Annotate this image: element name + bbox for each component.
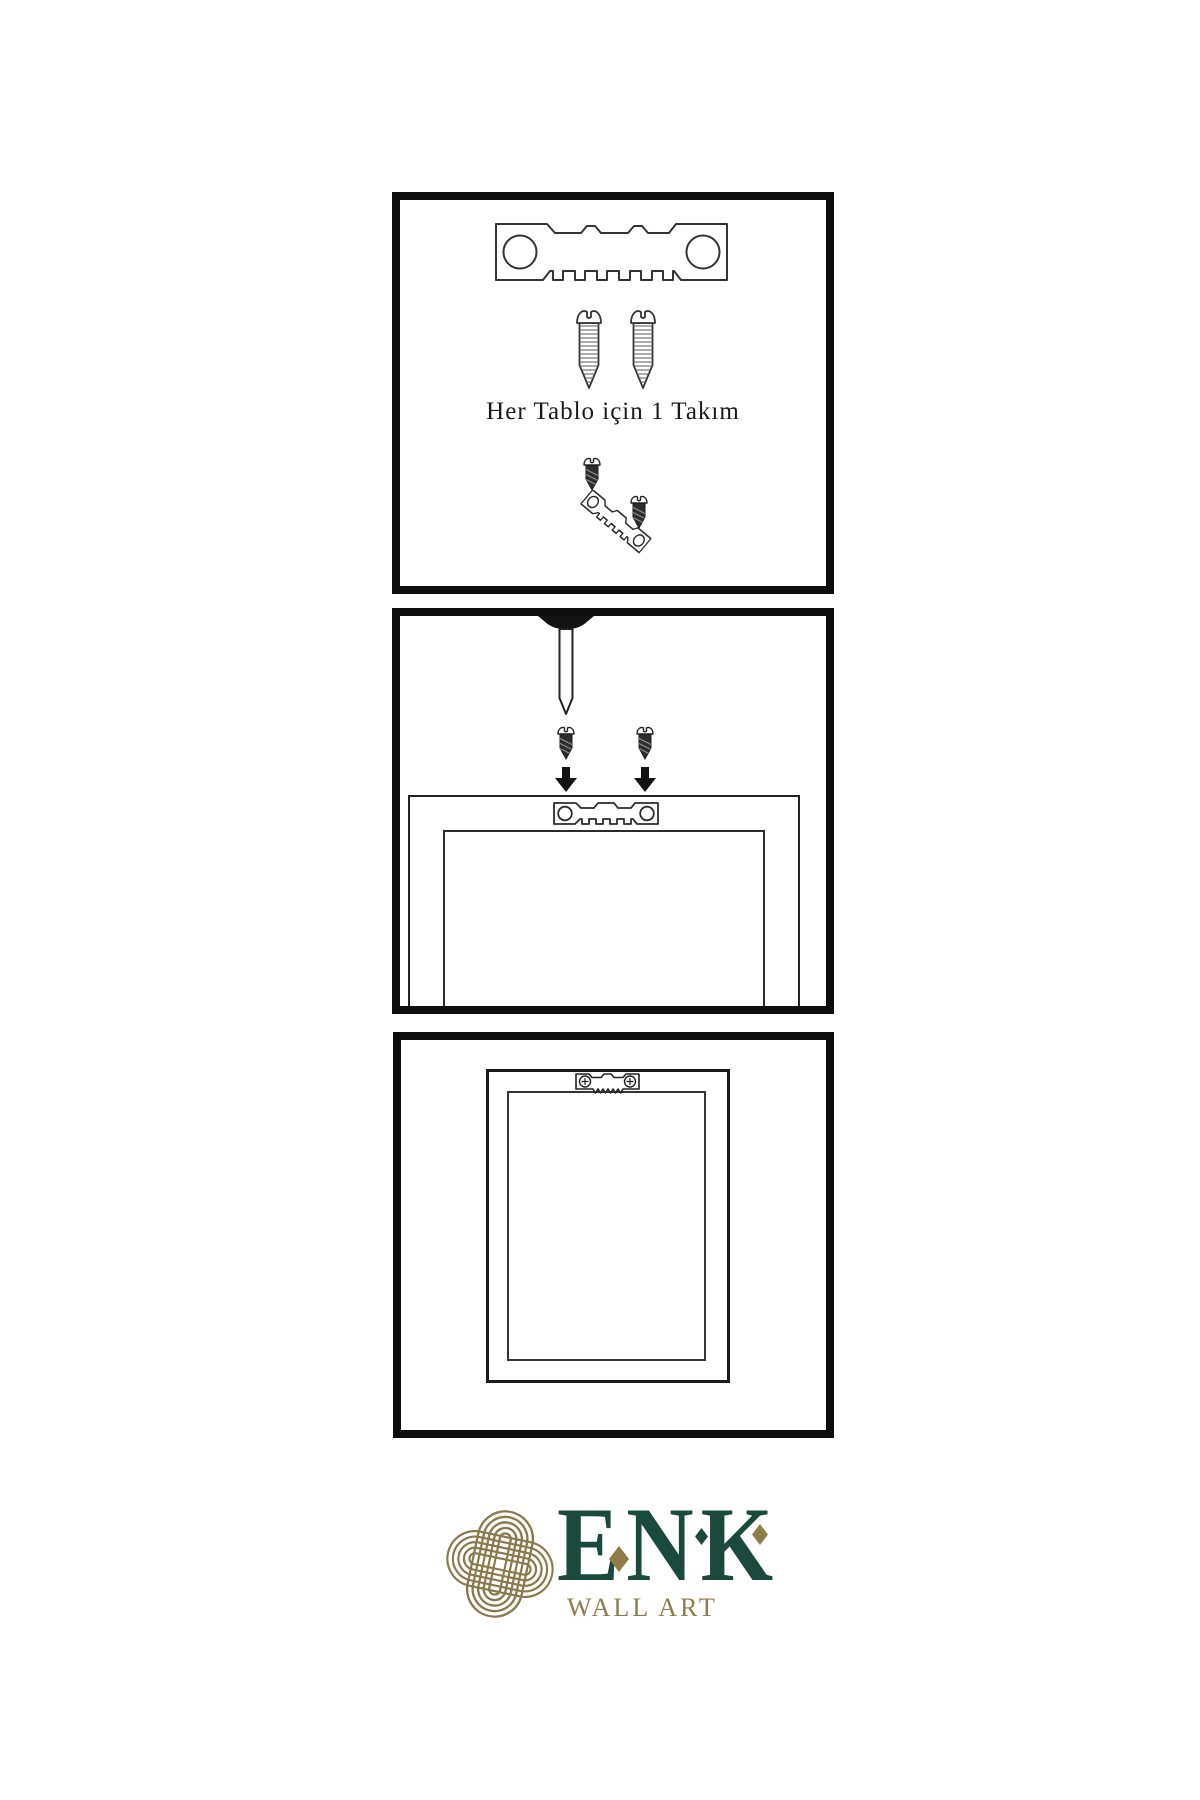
screw-icon [574, 308, 604, 390]
brand-name: ENK [557, 1492, 780, 1598]
step2-panel [392, 608, 834, 1014]
dark-screw-icon [556, 725, 576, 761]
wall-nail-icon [538, 616, 594, 720]
brand-subtitle: WALL ART [567, 1593, 718, 1623]
frame-back-inner-edge [443, 830, 765, 1010]
screw-icon [628, 308, 658, 390]
step1-panel: Her Tablo için 1 Takım [392, 192, 834, 594]
down-arrow-icon [633, 767, 657, 793]
down-arrow-icon [554, 767, 578, 793]
step1-caption: Her Tablo için 1 Takım [400, 398, 826, 426]
frame-back-inner-edge [507, 1091, 706, 1361]
sawtooth-hanger-icon [495, 223, 728, 281]
mounted-sawtooth-hanger-icon [575, 1073, 640, 1094]
step3-panel [393, 1032, 834, 1438]
dark-screw-icon [582, 456, 602, 492]
knot-logo-icon [437, 1500, 563, 1628]
dark-screw-icon [635, 725, 655, 761]
instruction-sheet: Her Tablo için 1 Takım [0, 0, 1200, 1800]
brand-logo: ENK WALL ART [437, 1496, 797, 1636]
angled-sawtooth-hanger-icon [550, 490, 680, 580]
dark-screw-icon [629, 494, 649, 530]
sawtooth-hanger-on-frame-icon [553, 802, 659, 825]
